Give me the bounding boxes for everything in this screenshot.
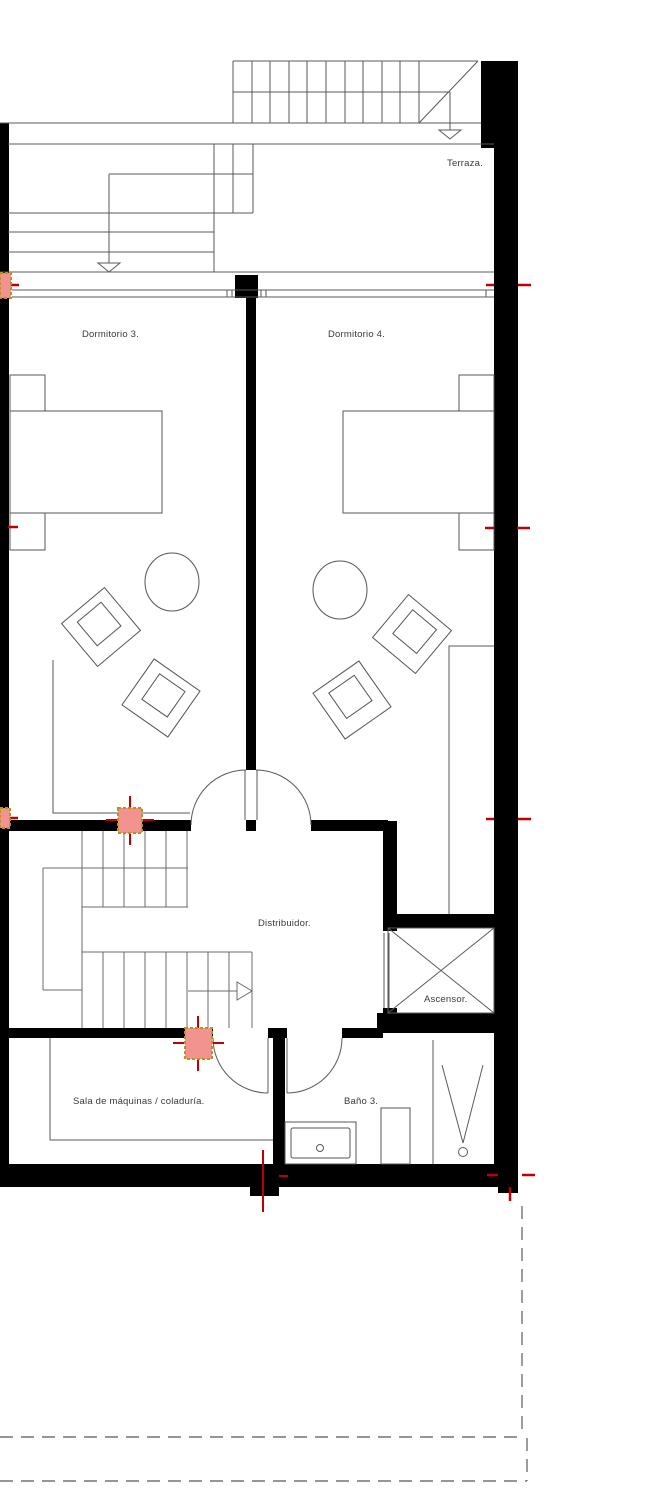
wardrobe-d4-outline: [449, 646, 494, 914]
marker-bedroom-wall: [106, 796, 154, 845]
nightstand-d3-bottom: [10, 513, 45, 550]
chair-d3-2: [122, 659, 200, 737]
room-label-dormitorio3: Dormitorio 3.: [82, 329, 139, 340]
room-label-dormitorio4: Dormitorio 4.: [328, 329, 385, 340]
toilet: [381, 1108, 410, 1164]
door-arc-sala: [213, 1038, 268, 1093]
wall-window-stub-center: [235, 275, 258, 298]
marker-window-left: [0, 273, 11, 298]
terrace-down-arrow-icon: [439, 130, 461, 139]
room-label-bano3: Baño 3.: [344, 1096, 378, 1107]
wall-elevator-north: [383, 914, 518, 928]
nightstand-d4-bottom: [459, 513, 494, 550]
table-d3: [145, 553, 199, 611]
wall-stub-bottom-right: [498, 1187, 518, 1193]
property-boundary-dashed: [0, 1206, 527, 1481]
room-label-sala-maquinas: Sala de máquinas / coladuría.: [73, 1096, 205, 1107]
bed-d4: [343, 411, 494, 513]
chair-d4-1: [373, 595, 452, 674]
door-arc-bano: [287, 1038, 342, 1093]
stairs-up-arrow-icon: [237, 982, 252, 1000]
shower-v-symbol: [442, 1065, 483, 1143]
room-label-distribuidor: Distribuidor.: [258, 918, 311, 929]
wall-stub-bottom-center: [250, 1187, 279, 1196]
room-label-ascensor: Ascensor.: [424, 994, 468, 1005]
sink-basin: [291, 1128, 350, 1158]
wall-distribuidor-south-right: [342, 1028, 383, 1038]
chair-d3-1: [62, 588, 141, 667]
marker-left-wall: [0, 808, 10, 828]
wall-stub-between-doors: [268, 1028, 287, 1038]
nightstand-d3-top: [10, 375, 45, 411]
marker-distribuidor-wall: [173, 1016, 224, 1071]
wall-door-stub-bedrooms: [246, 820, 256, 831]
floor-plan: Terraza. Dormitorio 3. Dormitorio 4. Dis…: [0, 0, 653, 1500]
wall-bedroom4-south: [311, 820, 388, 831]
wall-bottom: [0, 1164, 518, 1187]
stairs-upper-treads: [82, 831, 187, 907]
wall-between-bedrooms: [246, 298, 256, 770]
room-label-terraza: Terraza.: [447, 158, 483, 169]
shower-drain: [459, 1148, 468, 1157]
stairs-lower-treads: [82, 952, 252, 1028]
wall-elevator-south: [377, 1013, 518, 1033]
door-arc-d4: [256, 770, 311, 825]
stair-down-arrow-icon: [98, 263, 120, 272]
floor-plan-drawing: Terraza. Dormitorio 3. Dormitorio 4. Dis…: [0, 0, 653, 1500]
wall-bedroom3-south: [8, 820, 191, 831]
door-arc-d3: [191, 770, 246, 825]
bed-d3: [10, 411, 162, 513]
chair-d4-2: [313, 661, 391, 739]
table-d4: [313, 561, 367, 619]
wall-sala-bano-divider: [273, 1038, 285, 1164]
sala-counter-outline: [50, 1038, 273, 1140]
wall-right-top: [481, 61, 518, 148]
nightstand-d4-top: [459, 375, 494, 411]
window-frame-ticks: [227, 290, 486, 297]
red-ticks-left-wall: [8, 285, 19, 818]
wall-distribuidor-south-left: [0, 1028, 213, 1038]
